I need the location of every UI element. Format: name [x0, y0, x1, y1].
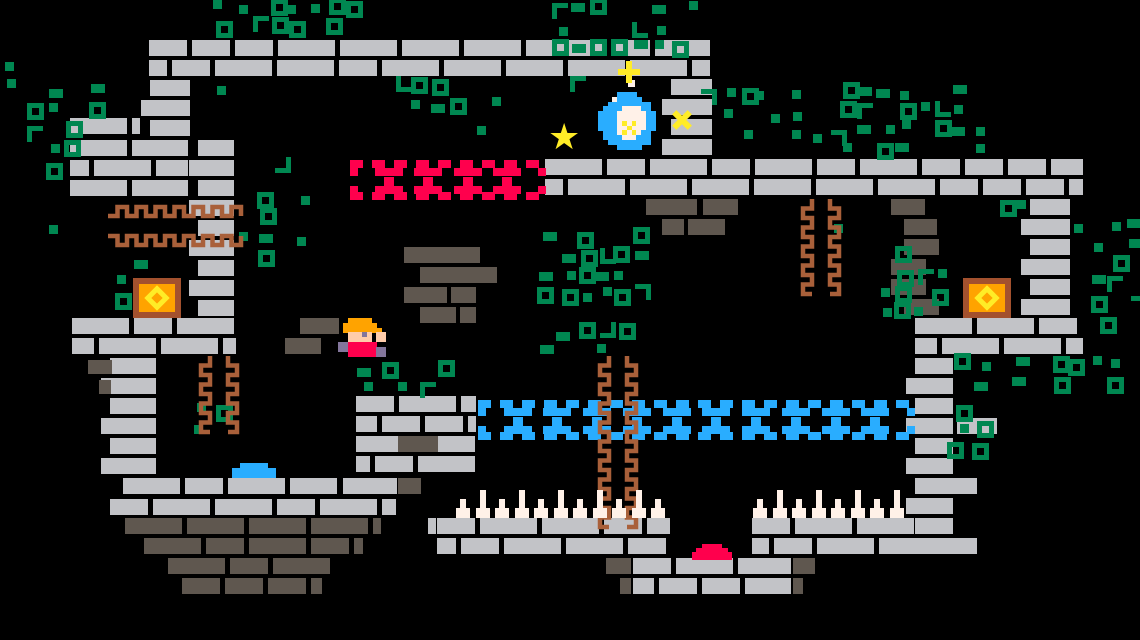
brick-accent — [398, 478, 421, 494]
foliage-tile — [595, 272, 609, 281]
foliage-tile — [572, 44, 586, 53]
brick — [1051, 159, 1083, 175]
spike — [812, 508, 826, 518]
brick — [1021, 259, 1070, 275]
brick — [278, 40, 335, 56]
foliage-tile — [701, 89, 717, 105]
ghost-platform-blue-dash — [566, 400, 579, 408]
brick — [1030, 239, 1070, 255]
brick — [110, 398, 156, 414]
ghost-platform-blue-rung — [870, 417, 880, 426]
ghost-platform-blue-rung — [861, 426, 889, 434]
foliage-tile — [652, 5, 666, 14]
spike-tip — [538, 499, 544, 508]
foliage-tile — [1054, 377, 1071, 394]
ghost-platform-blue-rung — [822, 426, 850, 434]
brick — [568, 60, 625, 76]
brick — [150, 80, 190, 96]
foliage-tile — [1016, 357, 1030, 366]
brick — [153, 499, 210, 515]
brick — [468, 416, 476, 432]
ghost-platform-blue-dash — [720, 400, 733, 408]
brick — [225, 578, 263, 594]
brick — [480, 518, 537, 534]
foliage-tile — [552, 39, 569, 56]
foliage-tile — [614, 271, 623, 280]
brick-accent — [646, 199, 697, 215]
foliage-tile — [932, 289, 949, 306]
ghost-platform-red-rung — [414, 168, 442, 176]
brick — [607, 159, 645, 175]
foliage-tile — [1012, 377, 1026, 386]
orb-enemy — [651, 126, 656, 131]
foliage-tile — [272, 17, 289, 34]
foliage-tile — [972, 443, 989, 460]
slime-red — [692, 552, 732, 560]
foliage-tile — [1091, 296, 1108, 313]
brick — [132, 180, 188, 196]
foliage-tile — [329, 0, 346, 15]
foliage-tile — [1000, 200, 1017, 217]
foliage-tile — [727, 88, 736, 97]
foliage-tile — [858, 87, 872, 96]
brick — [141, 100, 190, 116]
brick — [919, 518, 953, 534]
foliage-tile — [259, 234, 273, 243]
ghost-platform-blue-end — [907, 408, 915, 416]
brick — [817, 538, 874, 554]
foliage-tile — [559, 27, 568, 36]
brick — [215, 499, 272, 515]
foliage-tile — [724, 109, 733, 118]
brick — [506, 60, 563, 76]
ghost-platform-blue-rung — [504, 408, 532, 416]
brick — [461, 538, 499, 554]
foliage-tile — [91, 84, 105, 93]
brick — [149, 60, 167, 76]
foliage-tile — [956, 405, 973, 422]
ghost-platform-blue-rung — [861, 408, 889, 416]
foliage-tile — [311, 4, 320, 13]
foliage-tile — [213, 0, 222, 9]
brick — [692, 60, 710, 76]
ghost-platform-blue-end — [478, 408, 486, 416]
ghost-platform-blue-dash — [874, 400, 887, 408]
foliage-tile — [755, 91, 764, 100]
brick — [132, 140, 188, 156]
brick — [662, 139, 712, 155]
foliage-tile — [117, 275, 126, 284]
foliage-tile — [5, 62, 14, 71]
foliage-tile — [287, 5, 296, 14]
foliage-tile — [914, 307, 923, 316]
brick — [149, 40, 187, 56]
brick — [198, 300, 234, 316]
foliage-tile — [1017, 200, 1026, 209]
brick — [215, 60, 272, 76]
foliage-tile — [326, 18, 343, 35]
ghost-platform-red-dash — [438, 160, 451, 168]
foliage-tile — [46, 163, 63, 180]
ghost-platform-blue-dash — [808, 400, 821, 408]
brick-accent — [404, 287, 447, 303]
brick-accent — [451, 287, 476, 303]
brick — [545, 159, 602, 175]
foliage-tile — [1094, 243, 1103, 252]
foliage-tile — [611, 39, 628, 56]
brick — [277, 60, 334, 76]
brick — [922, 159, 960, 175]
brick — [816, 179, 873, 195]
brick — [70, 180, 127, 196]
brick — [311, 538, 349, 554]
brick — [268, 578, 306, 594]
foliage-tile — [597, 344, 606, 353]
foliage-tile — [556, 332, 570, 341]
spike-tip — [816, 490, 822, 508]
player-character — [381, 352, 386, 357]
foliage-tile — [840, 101, 857, 118]
foliage-tile — [935, 120, 952, 137]
brick — [676, 558, 733, 574]
brick — [156, 160, 188, 176]
brick — [249, 518, 306, 534]
ghost-platform-red-rung — [384, 177, 394, 186]
brick-accent — [428, 518, 436, 534]
brick-accent — [945, 478, 977, 494]
foliage-tile — [977, 421, 994, 438]
foliage-tile — [744, 130, 753, 139]
brick — [382, 499, 396, 515]
brick — [915, 358, 953, 374]
brick — [879, 538, 917, 554]
ghost-platform-blue-rung — [791, 417, 801, 426]
brick — [860, 159, 917, 175]
spike-tip — [855, 490, 861, 508]
brick — [628, 538, 666, 554]
foliage-tile — [1107, 276, 1123, 292]
brick — [110, 499, 148, 515]
sparkle-plus-icon — [618, 61, 640, 83]
brick — [545, 179, 563, 195]
ghost-platform-red-rung — [375, 186, 403, 194]
foliage-tile — [900, 103, 917, 120]
brick — [182, 578, 220, 594]
brick-accent — [703, 199, 738, 215]
spike-tip — [835, 499, 841, 508]
brick — [206, 538, 244, 554]
ghost-platform-blue-dash — [852, 400, 865, 408]
brick — [354, 538, 363, 554]
ghost-platform-red-dash — [526, 160, 539, 168]
ghost-platform-blue-dash — [830, 400, 843, 408]
brick-accent — [420, 307, 456, 323]
foliage-tile — [895, 286, 912, 303]
brick — [942, 338, 999, 354]
foliage-tile — [954, 105, 963, 114]
brick — [235, 40, 273, 56]
spike-tip — [597, 490, 603, 508]
brick — [110, 438, 156, 454]
ghost-platform-blue-dash — [676, 400, 689, 408]
ghost-platform-blue-rung — [742, 408, 770, 416]
brick — [940, 179, 978, 195]
brick — [402, 40, 459, 56]
ghost-platform-blue-dash — [544, 400, 557, 408]
brick — [915, 398, 953, 414]
brick — [566, 538, 623, 554]
brick — [228, 478, 285, 494]
foliage-tile — [1112, 222, 1121, 231]
brick — [343, 478, 397, 494]
foliage-tile — [857, 103, 873, 119]
foliage-tile — [258, 250, 275, 267]
brick — [754, 179, 811, 195]
brick — [752, 538, 769, 554]
spike — [773, 508, 787, 518]
brick-accent — [793, 558, 815, 574]
foliage-tile — [619, 323, 636, 340]
brick — [356, 456, 370, 472]
ghost-platform-red-dash — [416, 160, 429, 168]
foliage-tile — [632, 22, 648, 38]
foliage-tile — [771, 114, 780, 123]
puddle-blue — [232, 468, 276, 478]
foliage-tile — [953, 85, 967, 94]
ghost-platform-red-dash — [504, 160, 517, 168]
brick — [1066, 338, 1083, 354]
brick — [230, 558, 268, 574]
brick — [1004, 338, 1061, 354]
foliage-tile — [1131, 296, 1140, 312]
brick — [857, 518, 914, 534]
ghost-platform-blue-dash — [654, 400, 667, 408]
brick-accent — [606, 558, 631, 574]
game-viewport[interactable]: ★ — [0, 0, 1140, 640]
foliage-tile — [577, 232, 594, 249]
foliage-tile — [935, 101, 951, 117]
brick-accent — [620, 578, 631, 594]
foliage-tile — [398, 382, 407, 391]
brick — [444, 60, 501, 76]
brick — [461, 396, 476, 412]
foliage-tile — [570, 76, 586, 92]
brick — [755, 159, 812, 175]
brick — [311, 518, 368, 534]
ghost-platform-red-end — [350, 186, 358, 194]
foliage-tile — [297, 237, 306, 246]
foliage-tile — [581, 250, 598, 267]
brick-accent — [945, 538, 977, 554]
vine — [817, 199, 839, 283]
foliage-tile — [954, 353, 971, 370]
brick — [633, 558, 671, 574]
brick — [1026, 179, 1064, 195]
brick — [189, 280, 234, 296]
brick — [198, 140, 234, 156]
vine — [108, 203, 238, 225]
spike — [554, 508, 568, 518]
brick — [542, 518, 599, 534]
foliage-tile — [271, 0, 288, 16]
foliage-tile — [793, 112, 802, 121]
ghost-platform-blue-rung — [702, 408, 730, 416]
foliage-tile — [562, 289, 579, 306]
brick-accent — [688, 219, 725, 235]
foliage-tile — [813, 134, 822, 143]
foliage-tile — [877, 143, 894, 160]
brick — [311, 578, 322, 594]
brick — [277, 499, 315, 515]
spike-tip — [577, 499, 583, 508]
brick — [906, 498, 953, 514]
foliage-tile — [567, 271, 576, 280]
orb-enemy — [646, 140, 651, 145]
spike-tip — [558, 490, 564, 508]
foliage-tile — [49, 103, 58, 112]
spike — [515, 508, 529, 518]
foliage-tile — [420, 382, 436, 398]
spike — [870, 508, 884, 518]
foliage-tile — [27, 103, 44, 120]
foliage-tile — [579, 267, 596, 284]
brick — [418, 456, 475, 472]
spike — [495, 508, 509, 518]
ghost-platform-blue-dash — [808, 432, 821, 440]
brick-accent — [891, 199, 925, 215]
brick — [125, 518, 182, 534]
brick — [1021, 219, 1070, 235]
foliage-tile — [257, 192, 274, 209]
ghost-platform-red-rung — [493, 186, 521, 194]
brick-accent — [662, 219, 684, 235]
brick — [134, 318, 172, 334]
foliage-tile — [579, 322, 596, 339]
foliage-tile — [635, 251, 649, 260]
brick — [94, 160, 151, 176]
foliage-tile — [886, 125, 895, 134]
foliage-tile — [540, 345, 554, 354]
vine — [108, 223, 238, 245]
spike-tip — [894, 490, 900, 508]
foliage-tile — [583, 293, 592, 302]
foliage-tile — [301, 196, 310, 205]
brick-accent — [793, 578, 803, 594]
foliage-tile — [217, 86, 226, 95]
foliage-tile — [635, 284, 651, 300]
brick — [633, 578, 654, 594]
spike — [851, 508, 865, 518]
brick — [692, 179, 749, 195]
foliage-tile — [115, 293, 132, 310]
foliage-tile — [895, 143, 909, 152]
brick — [399, 396, 456, 412]
brick — [1069, 179, 1083, 195]
brick — [101, 418, 156, 434]
brick-accent — [460, 307, 476, 323]
ghost-platform-blue-rung — [782, 408, 810, 416]
foliage-tile — [1111, 359, 1120, 368]
foliage-tile — [655, 40, 664, 49]
brick — [177, 318, 234, 334]
spike — [593, 508, 607, 518]
spike-tip — [636, 490, 642, 508]
foliage-tile — [894, 302, 911, 319]
brick — [1030, 199, 1070, 215]
foliage-tile — [382, 362, 399, 379]
ghost-platform-red-rung — [423, 177, 433, 186]
brick — [382, 60, 439, 76]
ghost-platform-blue-rung — [702, 426, 730, 434]
foliage-tile — [27, 126, 43, 142]
foliage-tile — [590, 0, 607, 15]
foliage-tile — [883, 308, 892, 317]
ghost-platform-red-dash — [350, 160, 363, 168]
foliage-tile — [571, 3, 585, 12]
brick — [738, 558, 791, 574]
ghost-platform-red-rung — [502, 177, 512, 186]
foliage-tile — [49, 89, 63, 98]
brick — [185, 478, 223, 494]
foliage-tile — [857, 125, 871, 134]
brick — [320, 499, 377, 515]
foliage-tile — [1129, 239, 1140, 248]
brick — [878, 179, 935, 195]
brick — [189, 160, 234, 176]
spike — [632, 508, 646, 518]
foliage-tile — [613, 246, 630, 263]
brick — [1039, 318, 1077, 334]
ghost-platform-blue-rung — [831, 417, 841, 426]
brick — [659, 578, 697, 594]
foliage-tile — [411, 100, 420, 109]
spike-tip — [757, 499, 763, 508]
foliage-tile — [918, 269, 934, 285]
brick — [464, 40, 521, 56]
foliage-tile — [216, 21, 233, 38]
brick — [774, 538, 812, 554]
ghost-platform-blue-rung — [504, 426, 532, 434]
brick — [752, 518, 790, 534]
brick — [273, 558, 330, 574]
foliage-tile — [657, 26, 666, 35]
foliage-tile — [537, 287, 554, 304]
foliage-tile — [881, 288, 890, 297]
spike — [573, 508, 587, 518]
foliage-tile — [689, 1, 698, 10]
brick-accent — [99, 380, 111, 394]
spike-tip — [480, 490, 486, 508]
brick — [712, 159, 750, 175]
ghost-platform-blue-rung — [751, 417, 761, 426]
foliage-tile — [974, 382, 988, 391]
ghost-platform-red-rung — [375, 168, 403, 176]
foliage-tile — [1100, 317, 1117, 334]
ghost-platform-blue-dash — [786, 400, 799, 408]
brick — [123, 478, 180, 494]
ghost-platform-red-rung — [414, 186, 442, 194]
foliage-tile — [634, 40, 648, 49]
foliage-tile — [633, 227, 650, 244]
brick — [906, 378, 953, 394]
brick — [356, 416, 377, 432]
spike-tip — [777, 490, 783, 508]
brick — [745, 578, 791, 594]
foliage-tile — [1107, 377, 1124, 394]
foliage-tile — [947, 442, 964, 459]
foliage-tile — [49, 225, 58, 234]
spike-tip — [616, 499, 622, 508]
